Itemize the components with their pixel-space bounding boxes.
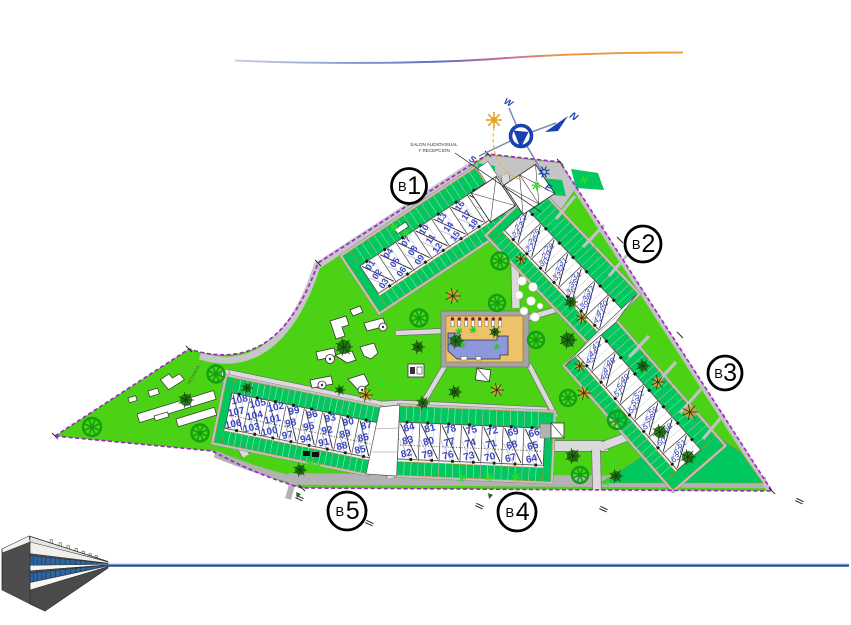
svg-text:1: 1 xyxy=(407,172,421,200)
svg-text:5: 5 xyxy=(346,497,360,525)
svg-text:2: 2 xyxy=(641,230,655,258)
svg-text:4: 4 xyxy=(516,498,530,526)
svg-text:3: 3 xyxy=(723,359,737,387)
svg-text:Y RECEPCION: Y RECEPCION xyxy=(418,148,450,153)
svg-text:SALON AUDIOVISUAL: SALON AUDIOVISUAL xyxy=(410,142,458,147)
svg-text:B: B xyxy=(714,366,723,381)
svg-text:B: B xyxy=(335,504,344,519)
svg-text:B: B xyxy=(632,237,641,252)
svg-text:B: B xyxy=(398,179,407,194)
svg-text:B: B xyxy=(505,505,514,520)
